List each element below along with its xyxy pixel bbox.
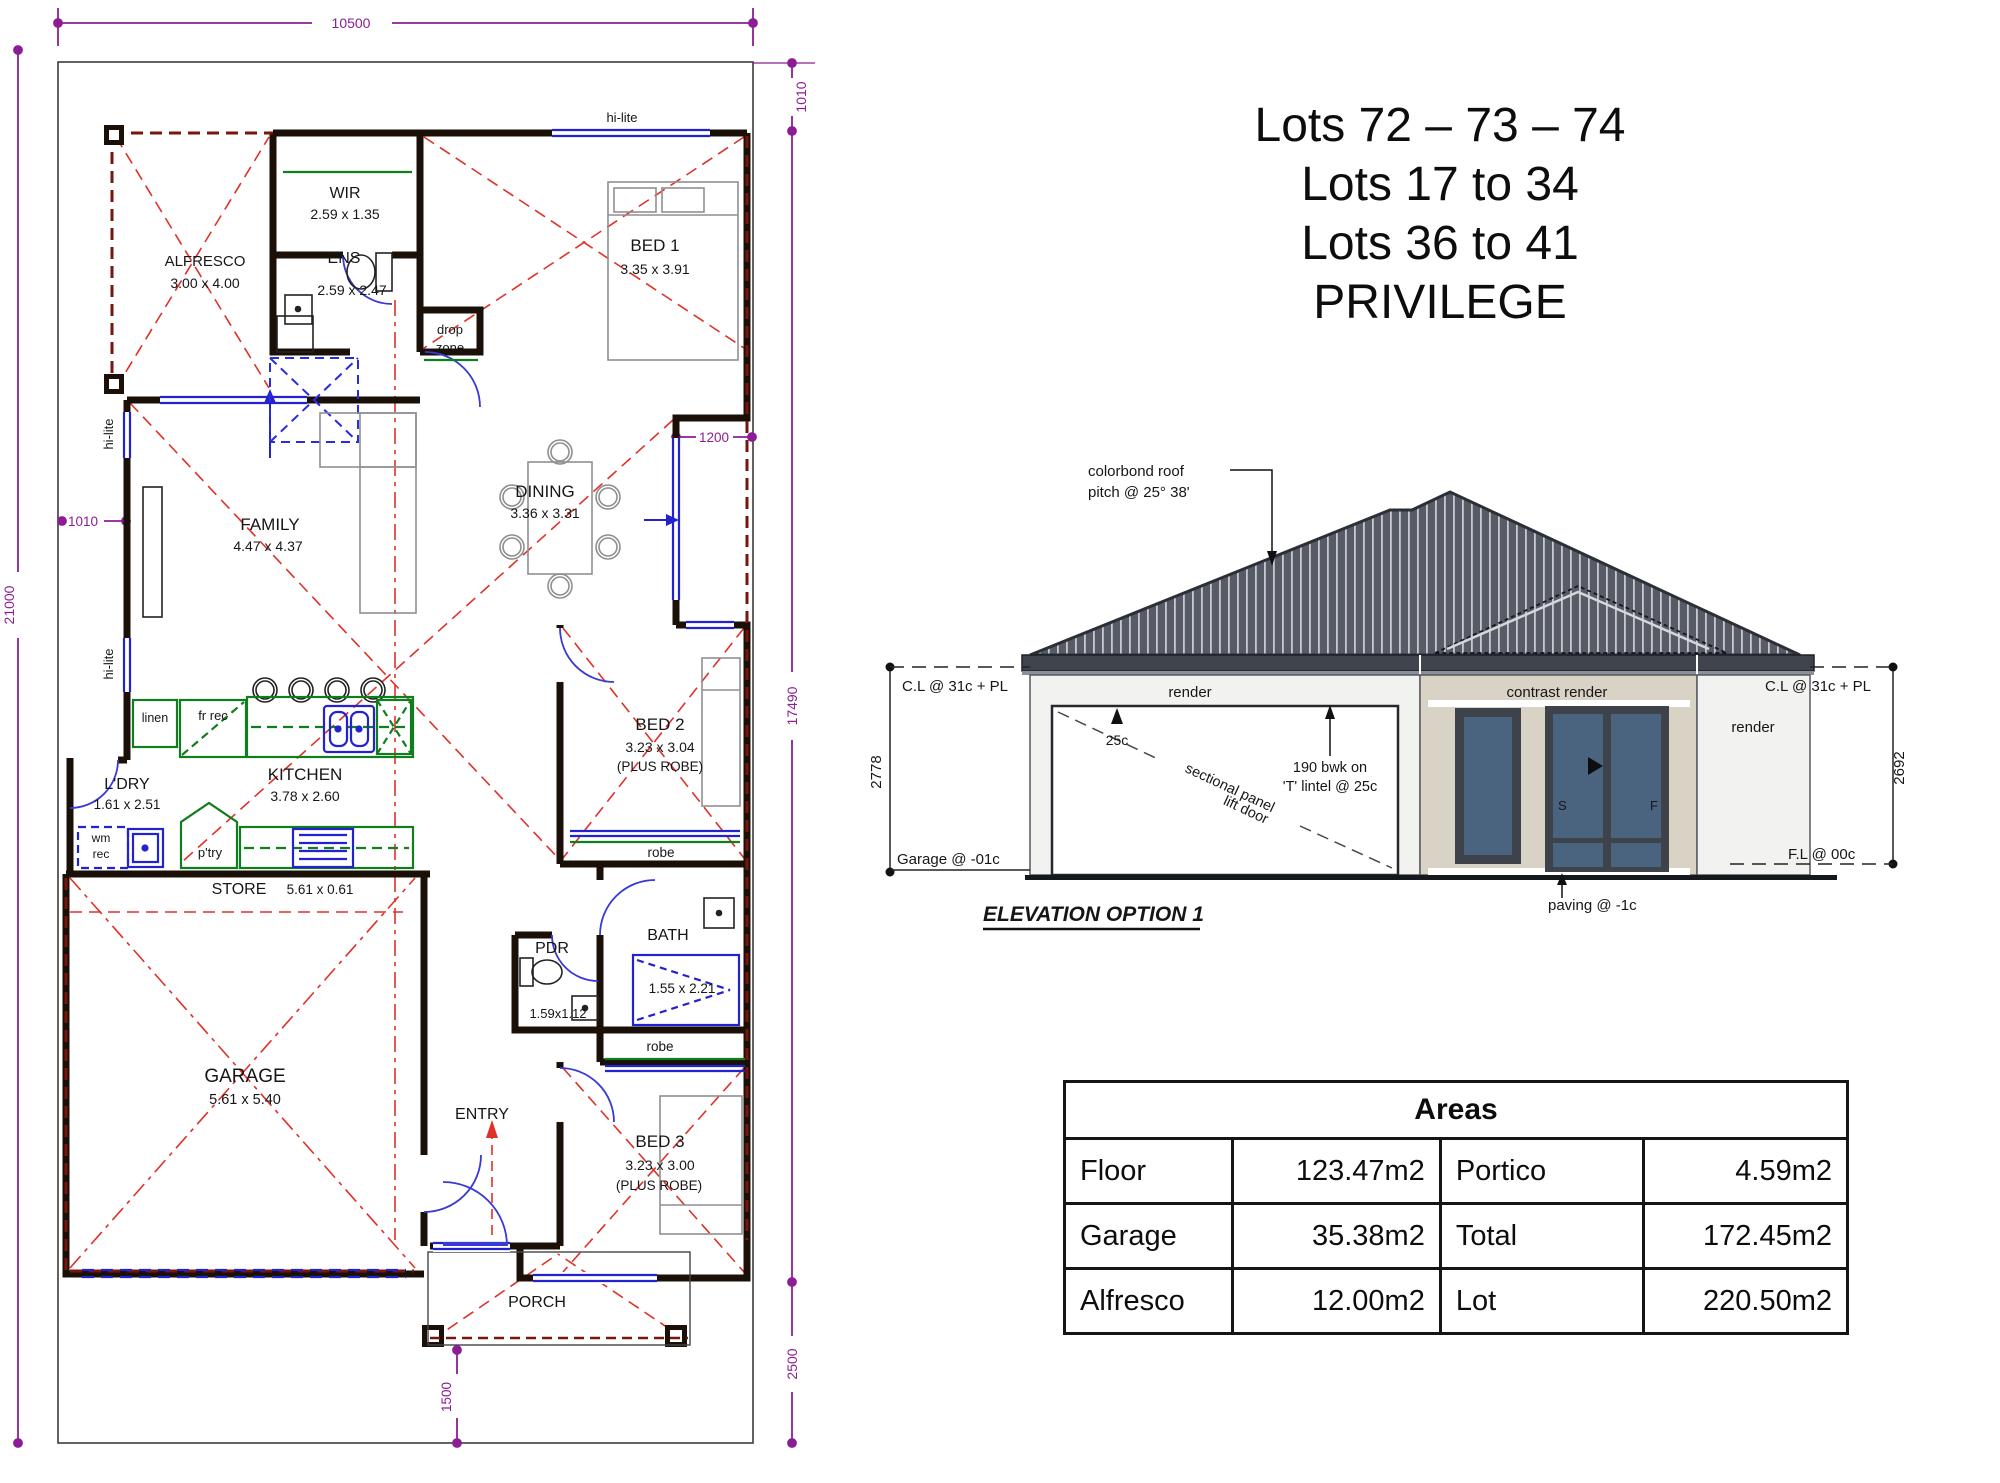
area-value: 172.45m2 [1644,1204,1848,1269]
label-wir-size: 2.59 x 1.35 [310,206,379,222]
height-right-label: 2692 [1891,751,1908,784]
label-bath: BATH [647,927,688,944]
table-row: Garage 35.38m2 Total 172.45m2 [1065,1204,1848,1269]
label-bed1: BED 1 [630,236,679,255]
dim-porch: 1500 [439,1382,454,1412]
label-bed1-size: 3.35 x 3.91 [620,261,689,277]
render-right-label: render [1731,719,1774,736]
label-bed3-extra: (PLUS ROBE) [616,1178,702,1193]
area-label: Total [1440,1204,1644,1269]
roof-note-line-1: colorbond roof [1088,463,1185,480]
joinery-green [133,172,745,1059]
fascia [1022,655,1814,671]
label-fr-rec: fr rec [198,708,228,723]
label-bed3-size: 3.23 x 3.00 [625,1157,694,1173]
dimension-lines [14,8,815,1447]
area-label: Garage [1065,1204,1233,1269]
area-label: Lot [1440,1269,1644,1334]
dim-left-offset: 1010 [68,514,98,529]
label-hilite-top: hi-lite [606,110,637,125]
ground-line [1025,875,1837,880]
areas-table-title: Areas [1065,1082,1848,1139]
label-alfresco-size: 3.00 x 4.00 [170,275,239,291]
label-bath-size: 1.55 x 2.21 [649,981,716,996]
elevation-left-dim: C.L @ 31c + PL 2778 Garage @ -01c [868,663,1030,877]
lots-line-3: Lots 36 to 41 [1040,214,1840,273]
label-garage: GARAGE [204,1066,285,1087]
dim-right-top: 1010 [793,81,809,112]
area-label: Portico [1440,1139,1644,1204]
label-alfresco: ALFRESCO [165,253,246,270]
contrast-render-label: contrast render [1507,684,1608,701]
label-wm-2: rec [93,847,110,861]
label-hilite-left2: hi-lite [101,648,116,679]
area-value: 4.59m2 [1644,1139,1848,1204]
bwk-label-2: 'T' lintel @ 25c [1283,779,1377,795]
cl-left-label: C.L @ 31c + PL [902,678,1008,695]
dim-recess: 1200 [699,430,729,445]
doors [70,255,655,1246]
lots-line-1: Lots 72 – 73 – 74 [1040,96,1840,155]
lintel-25c-label: 25c [1106,732,1129,748]
label-ens-size: 2.59 x 2.47 [317,282,386,298]
label-bed2: BED 2 [635,715,684,734]
height-left-label: 2778 [868,755,885,788]
label-store-size: 5.61 x 0.61 [287,882,354,897]
lots-line-2: Lots 17 to 34 [1040,155,1840,214]
roof-note: colorbond roof pitch @ 25° 38' [1088,463,1277,566]
page: 10500 21000 1010 1010 17490 2500 1200 15… [0,0,2000,1483]
dim-right-main: 17490 [784,686,800,725]
area-value: 12.00m2 [1233,1269,1440,1334]
paving-label: paving @ -1c [1548,897,1637,914]
label-ldry: L'DRY [104,776,150,793]
label-linen: linen [142,711,168,725]
roof-note-line-2: pitch @ 25° 38' [1088,484,1190,501]
wall-render-right [1697,675,1810,875]
dimension-labels: 10500 21000 1010 1010 17490 2500 1200 15… [1,15,809,1412]
areas-table: Areas Floor 123.47m2 Portico 4.59m2 Gara… [1063,1080,1849,1335]
lots-line-4: PRIVILEGE [1040,273,1840,332]
dim-top: 10500 [332,15,371,31]
label-bed2-size: 3.23 x 3.04 [625,739,694,755]
dim-left: 21000 [1,585,17,624]
label-robe-2: robe [646,1039,673,1054]
label-kitchen: KITCHEN [268,765,343,784]
label-bed2-extra: (PLUS ROBE) [617,759,703,774]
window-letter-s: S [1558,798,1567,813]
area-value: 220.50m2 [1644,1269,1848,1334]
label-drop-2: zone [436,340,464,355]
label-entry: ENTRY [455,1106,509,1123]
cl-right-label: C.L @ 31c + PL [1765,678,1871,695]
bwk-label-1: 190 bwk on [1293,760,1367,776]
fixtures-black [143,253,734,1020]
render-left-label: render [1168,684,1211,701]
label-dining-size: 3.36 x 3.31 [510,505,579,521]
label-bed3: BED 3 [635,1132,684,1151]
label-hilite-left1: hi-lite [101,418,116,449]
elevation-title-group: ELEVATION OPTION 1 [983,903,1204,929]
fl-label: F.L @ 00c [1788,846,1856,863]
walls [66,133,747,1278]
label-robe-1: robe [647,845,674,860]
label-wir: WIR [329,185,360,202]
label-drop-1: drop [437,322,463,337]
areas-table-wrap: Areas Floor 123.47m2 Portico 4.59m2 Gara… [1063,1080,1849,1335]
furniture [320,182,742,1234]
label-garage-size: 5.61 x 5.40 [209,1092,281,1108]
area-label: Floor [1065,1139,1233,1204]
area-value: 35.38m2 [1233,1204,1440,1269]
elevation-drawing: S F sectional panel lift door 25c 190 bw… [860,430,1940,990]
label-ptry: p'try [198,845,223,860]
table-row: Floor 123.47m2 Portico 4.59m2 [1065,1139,1848,1204]
area-label: Alfresco [1065,1269,1233,1334]
room-labels: ALFRESCO 3.00 x 4.00 WIR 2.59 x 1.35 ENS… [91,110,716,1311]
window-letter-f: F [1650,798,1658,813]
label-ens: ENS [328,250,361,267]
garage-level-label: Garage @ -01c [897,851,1000,868]
table-row: Alfresco 12.00m2 Lot 220.50m2 [1065,1269,1848,1334]
label-pdr-size: 1.59x1.12 [529,1006,586,1021]
label-store: STORE [212,881,267,898]
label-family-size: 4.47 x 4.37 [233,538,302,554]
label-wm-1: wm [91,831,111,845]
label-kitchen-size: 3.78 x 2.60 [270,788,339,804]
label-family: FAMILY [240,515,299,534]
label-ldry-size: 1.61 x 2.51 [94,797,161,812]
elevation-title: ELEVATION OPTION 1 [983,903,1204,926]
area-value: 123.47m2 [1233,1139,1440,1204]
dim-right-bottom: 2500 [784,1348,800,1379]
roof [1022,492,1814,675]
label-porch: PORCH [508,1294,566,1311]
elevation-walls: S F sectional panel lift door 25c 190 bw… [1030,675,1810,875]
floor-plan: 10500 21000 1010 1010 17490 2500 1200 15… [0,0,840,1483]
label-dining: DINING [515,482,575,501]
label-pdr: PDR [535,940,569,957]
lots-title-block: Lots 72 – 73 – 74 Lots 17 to 34 Lots 36 … [1040,96,1840,332]
